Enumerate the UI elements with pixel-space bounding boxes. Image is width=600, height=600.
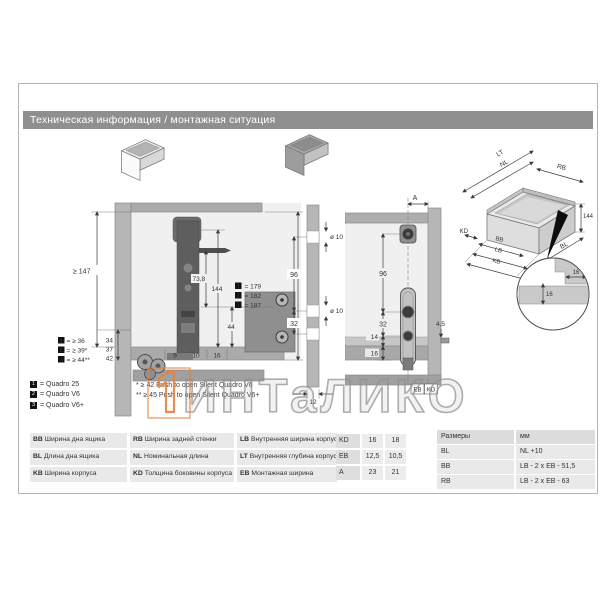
table-cell: BL Длина дна ящика xyxy=(30,450,127,465)
dim-label: ø 10 xyxy=(330,308,343,315)
svg-text:3: 3 xyxy=(60,357,63,363)
dim-label: 14 xyxy=(371,334,379,341)
marker-2: 2 xyxy=(30,391,37,398)
dim-label: KB xyxy=(492,258,501,266)
iso-drawer-diagram: LT NL RB 144 KD BB LB KB BL 16 16 xyxy=(435,136,597,338)
table-cell: LT Внутренняя глубина корпуса xyxy=(237,450,337,465)
dim-label: ≥ 147 xyxy=(73,269,91,276)
dim-label: 12 xyxy=(309,399,317,406)
svg-text:= ≥ 36: = ≥ 36 xyxy=(67,338,86,345)
dim-label: KD xyxy=(460,229,469,235)
dim-label: ø 10 xyxy=(330,234,343,241)
size-cell: LB - 2 x EB - 63 xyxy=(516,475,595,489)
param-value: 18 xyxy=(385,434,406,448)
table-cell: EB Монтажная ширина xyxy=(237,467,337,482)
size-table: Размеры мм BL NL +10 BB LB - 2 x EB - 51… xyxy=(437,430,595,489)
param-label: EB xyxy=(336,450,360,464)
height-legend: 1 = 179 2 = 182 3 = 187 xyxy=(235,283,261,310)
logo-watermark xyxy=(146,366,194,420)
dim-label: 32 xyxy=(379,322,387,329)
table-cell: KB Ширина корпуса xyxy=(30,467,127,482)
dim-label: 32 xyxy=(290,321,298,328)
size-cell: RB xyxy=(437,475,514,489)
models-legend: 1= Quadro 25 2= Quadro V6 3= Quadro V6+ xyxy=(30,379,84,411)
svg-text:37: 37 xyxy=(106,347,114,354)
drawer-open-icon xyxy=(112,136,168,186)
dim-label: 16 xyxy=(573,270,580,276)
table-cell: LB Внутренняя ширина корпуса xyxy=(237,433,337,448)
dim-label: A xyxy=(413,195,418,202)
dim-label: 96 xyxy=(290,272,298,279)
size-cell: NL +10 xyxy=(516,445,595,459)
legend-row: 2= Quadro V6 xyxy=(30,390,84,401)
svg-text:3: 3 xyxy=(237,303,240,309)
dim-label: 44 xyxy=(228,324,236,331)
dim-label: KD xyxy=(427,388,436,394)
size-cell: BB xyxy=(437,460,514,474)
size-header: мм xyxy=(516,430,595,444)
dim-label: 144 xyxy=(583,214,594,220)
table-cell: RB Ширина задней стенки xyxy=(130,433,234,448)
svg-text:34: 34 xyxy=(106,338,114,345)
svg-text:= 187: = 187 xyxy=(245,302,262,309)
param-label: A xyxy=(336,466,360,480)
size-cell: LB - 2 x EB - 51,5 xyxy=(516,460,595,474)
top-panel xyxy=(345,213,428,223)
svg-text:16: 16 xyxy=(213,353,221,360)
gap-legend: 1 = ≥ 36 2 = ≥ 39* 3 = ≥ 44** xyxy=(58,337,90,364)
lower-rail xyxy=(345,375,441,385)
table-cell: BB Ширина дна ящика xyxy=(30,433,127,448)
svg-text:2: 2 xyxy=(237,293,240,299)
page-title: Техническая информация / монтажная ситуа… xyxy=(23,111,593,129)
dim-label: BL xyxy=(559,240,570,250)
dim-label: 16 xyxy=(546,292,553,298)
legend-row: 3= Quadro V6+ xyxy=(30,400,84,411)
drawer-gray-icon xyxy=(276,131,332,181)
drill-hole xyxy=(307,231,319,243)
cabinet-side-panel xyxy=(115,203,131,416)
catalog-page: Техническая информация / монтажная ситуа… xyxy=(0,0,600,600)
rear-view-drawing: A 96 32 14 16 4,5 EB KD xyxy=(345,192,450,402)
param-value: 10,5 xyxy=(385,450,406,464)
dim-label: 4,5 xyxy=(436,321,445,328)
marker-1: 1 xyxy=(30,381,37,388)
svg-text:= 182: = 182 xyxy=(245,293,262,300)
svg-text:42: 42 xyxy=(106,356,114,363)
offset-values: 34 37 42 xyxy=(106,338,114,363)
svg-text:= 179: = 179 xyxy=(245,283,262,290)
dim-label: RB xyxy=(556,163,567,172)
svg-text:1: 1 xyxy=(60,338,63,344)
svg-text:1: 1 xyxy=(237,284,240,290)
marker-3: 3 xyxy=(30,402,37,409)
size-cell: BL xyxy=(437,445,514,459)
param-table: KD 16 18 EB 12,5 10,5 A 23 21 xyxy=(336,434,406,480)
dim-label: EB xyxy=(413,388,421,394)
param-value: 12,5 xyxy=(362,450,383,464)
svg-text:= ≥ 39*: = ≥ 39* xyxy=(67,347,88,354)
table-cell: KD Толщина боковины корпуса xyxy=(130,467,234,482)
abbr-table: BB Ширина дна ящика RB Ширина задней сте… xyxy=(30,433,337,482)
param-value: 23 xyxy=(362,466,383,480)
svg-text:= ≥ 44**: = ≥ 44** xyxy=(67,357,91,364)
svg-text:10: 10 xyxy=(192,353,200,360)
dim-label: 16 xyxy=(371,351,379,358)
header-bar: Техническая информация / монтажная ситуа… xyxy=(23,111,593,129)
legend-row: 1= Quadro 25 xyxy=(30,379,84,390)
param-value: 16 xyxy=(362,434,383,448)
dim-label: LB xyxy=(494,247,503,255)
param-value: 21 xyxy=(385,466,406,480)
size-header: Размеры xyxy=(437,430,514,444)
drill-hole xyxy=(307,328,319,340)
dim-label: 73,8 xyxy=(193,276,206,283)
dim-label: 144 xyxy=(212,286,223,293)
cabinet-side-panel xyxy=(428,208,441,378)
table-cell: NL Номинальная длина xyxy=(130,450,234,465)
drill-hole xyxy=(307,305,319,317)
dim-label: LT xyxy=(495,149,505,159)
param-label: KD xyxy=(336,434,360,448)
dim-label: 96 xyxy=(379,271,387,278)
dim-label: NL xyxy=(499,158,510,168)
cabinet-top-rail xyxy=(131,203,262,212)
svg-text:2: 2 xyxy=(60,348,63,354)
svg-text:9: 9 xyxy=(173,353,177,360)
drill-pattern-drawing: 96 32 ø 10 ø 10 12 xyxy=(283,198,345,406)
